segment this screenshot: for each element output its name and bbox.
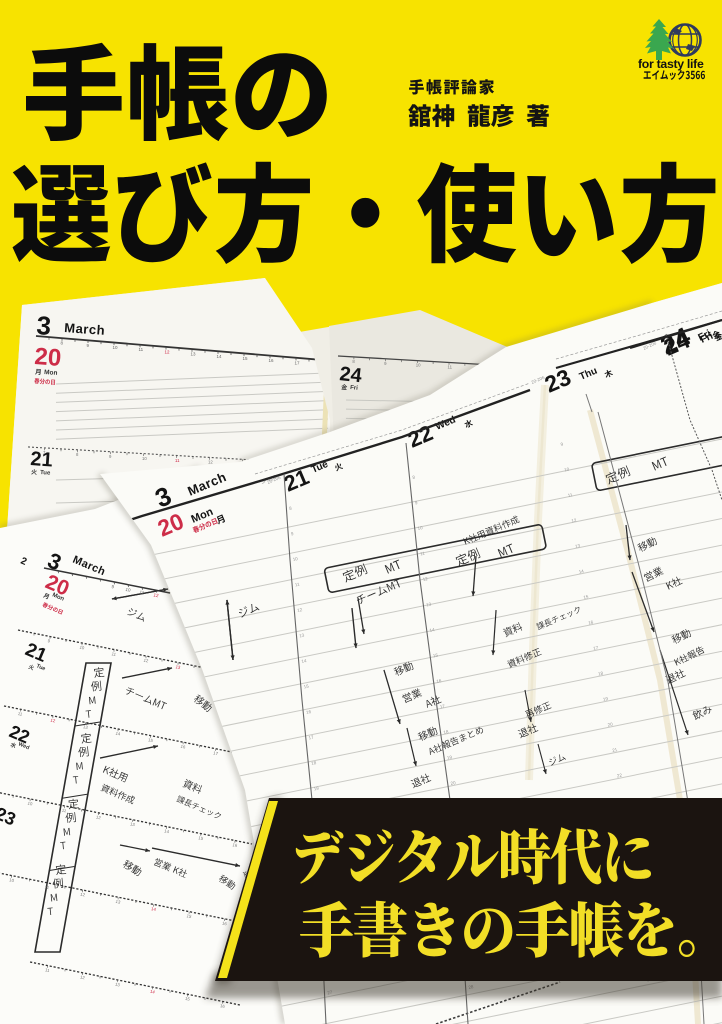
svg-text:12: 12 [165, 349, 171, 354]
svg-text:for tasty life: for tasty life [638, 57, 704, 71]
svg-text:12: 12 [208, 460, 213, 465]
svg-text:17: 17 [295, 360, 301, 365]
svg-text:15: 15 [243, 356, 249, 361]
svg-text:Fri: Fri [350, 385, 359, 392]
svg-text:10: 10 [113, 345, 119, 350]
svg-text:14: 14 [217, 354, 223, 359]
svg-text:Mon: Mon [44, 369, 58, 377]
svg-text:Tue: Tue [40, 470, 51, 477]
svg-text:16: 16 [269, 358, 275, 363]
svg-text:11: 11 [448, 365, 453, 370]
svg-text:24: 24 [338, 363, 363, 387]
svg-text:11: 11 [175, 458, 180, 463]
svg-text:13: 13 [191, 352, 197, 357]
svg-text:10: 10 [416, 363, 421, 368]
svg-text:March: March [64, 320, 106, 338]
svg-text:11: 11 [139, 347, 144, 352]
svg-text:21: 21 [30, 448, 54, 471]
svg-text:20: 20 [34, 343, 63, 372]
svg-text:10: 10 [142, 456, 147, 461]
